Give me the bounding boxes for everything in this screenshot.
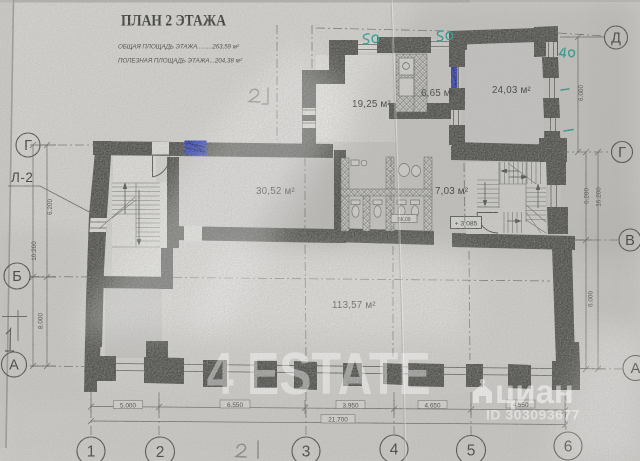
svg-text:4 ESTATE: 4 ESTATE — [207, 342, 431, 408]
svg-text:ID 303093677: ID 303093677 — [486, 407, 580, 423]
svg-text:циан: циан — [495, 373, 574, 410]
